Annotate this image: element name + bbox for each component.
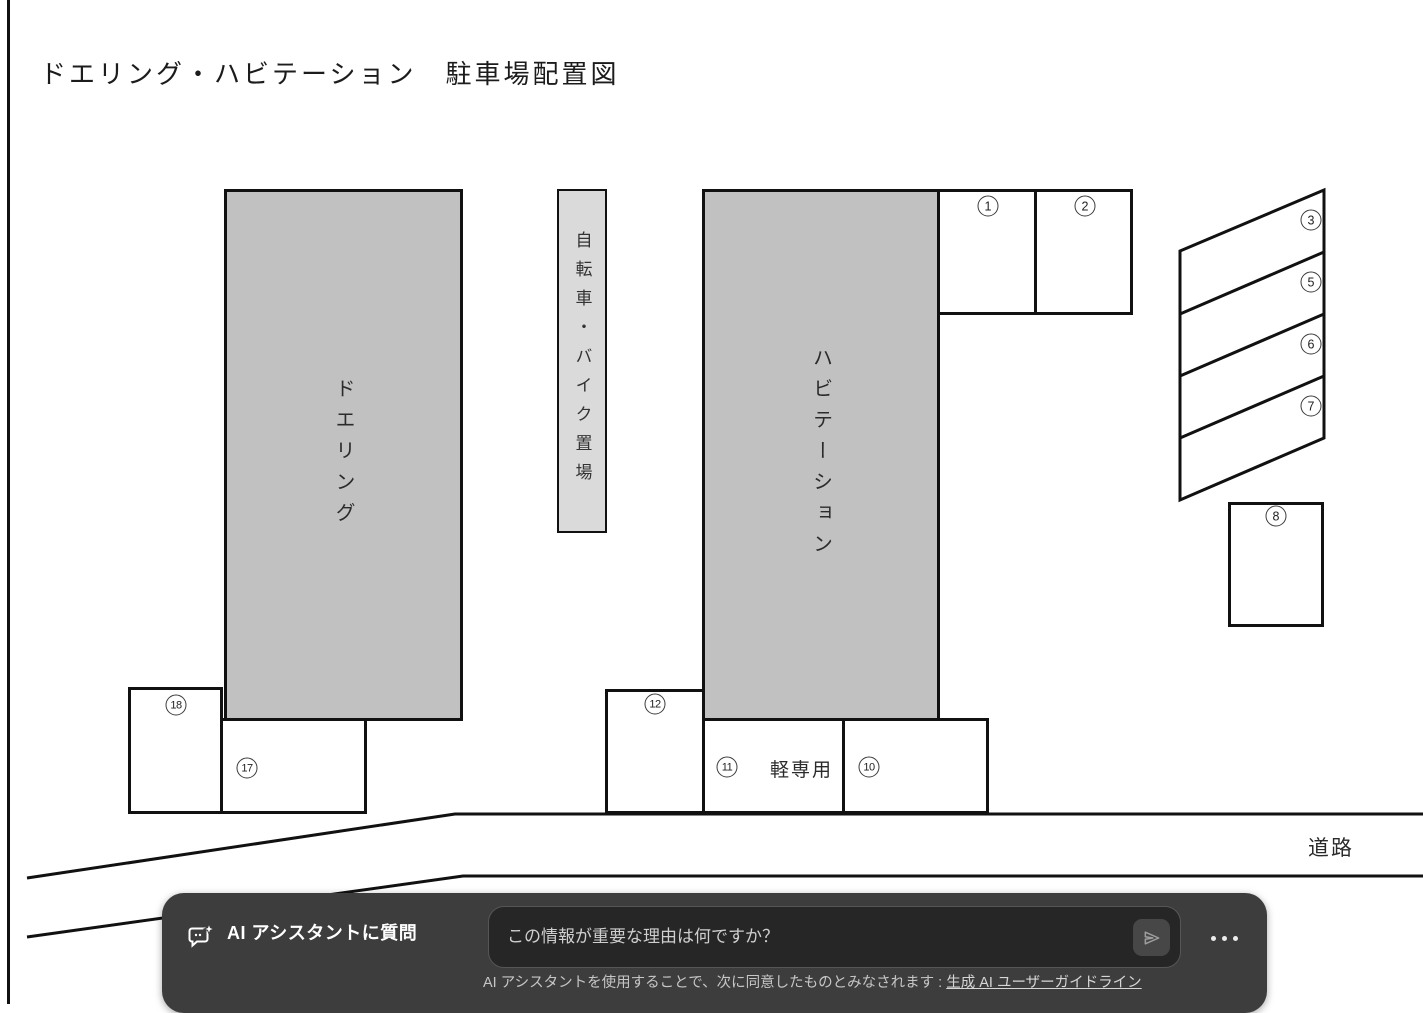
space-number-17: 17 — [237, 758, 258, 779]
space-number-18: 18 — [166, 695, 187, 716]
space-number-5: 5 — [1301, 272, 1322, 293]
road-upper-line — [27, 814, 1423, 878]
space-number-10: 10 — [859, 757, 880, 778]
road-label: 道路 — [1308, 832, 1354, 862]
space-number-6: 6 — [1301, 334, 1322, 355]
ellipsis-icon — [1211, 936, 1216, 941]
kei-only-label: 軽専用 — [770, 755, 833, 782]
space-number-2: 2 — [1075, 196, 1096, 217]
more-options-button[interactable] — [1202, 918, 1246, 958]
space-number-3: 3 — [1301, 210, 1322, 231]
building-dwelling-label: ドエリング — [329, 378, 358, 533]
guideline-link[interactable]: 生成 AI ユーザーガイドライン — [946, 975, 1141, 991]
chat-sparkle-icon — [188, 923, 215, 950]
bicycle-parking-label: 自転車・バイク置場 — [570, 231, 595, 492]
ai-assistant-title: AI アシスタントに質問 — [227, 919, 417, 945]
ai-assistant-bar: AI アシスタントに質問 AI アシスタントを使用することで、次に同意したものと… — [162, 893, 1267, 1013]
space-number-1: 1 — [978, 196, 999, 217]
space-number-8: 8 — [1266, 506, 1287, 527]
send-icon — [1142, 928, 1162, 948]
page-left-border — [7, 0, 10, 1004]
building-habitation-label: ハビテーション — [807, 347, 836, 564]
bicycle-parking-area: 自転車・バイク置場 — [557, 189, 607, 533]
space-number-7: 7 — [1301, 396, 1322, 417]
building-habitation: ハビテーション — [702, 189, 940, 721]
space-number-11: 11 — [717, 757, 738, 778]
ai-question-input[interactable] — [489, 907, 1119, 967]
send-button[interactable] — [1133, 919, 1170, 956]
ai-disclaimer-text: AI アシスタントを使用することで、次に同意したものとみなされます : — [483, 975, 946, 991]
space-number-12: 12 — [645, 694, 666, 715]
ai-question-input-wrap — [488, 906, 1181, 968]
page-title: ドエリング・ハビテーション 駐車場配置図 — [40, 54, 619, 91]
ai-disclaimer: AI アシスタントを使用することで、次に同意したものとみなされます : 生成 A… — [483, 971, 1142, 992]
building-dwelling: ドエリング — [224, 189, 463, 721]
